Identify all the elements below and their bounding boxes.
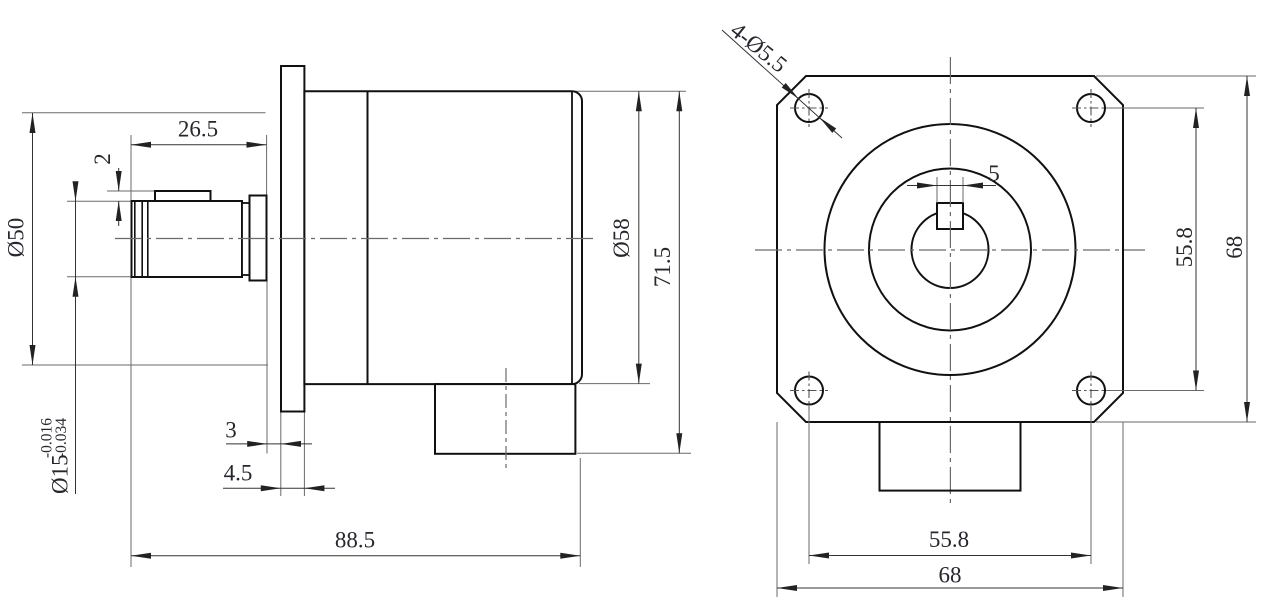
svg-text:88.5: 88.5	[335, 528, 375, 553]
svg-text:26.5: 26.5	[178, 117, 218, 142]
svg-text:Ø15: Ø15	[48, 454, 73, 494]
svg-text:68: 68	[1222, 236, 1247, 259]
svg-text:55.8: 55.8	[929, 527, 969, 552]
svg-text:55.8: 55.8	[1172, 227, 1197, 267]
svg-text:3: 3	[225, 418, 237, 443]
svg-text:4.5: 4.5	[224, 461, 253, 486]
svg-text:68: 68	[939, 563, 962, 588]
svg-text:Ø58: Ø58	[609, 218, 634, 258]
svg-text:5: 5	[988, 161, 1000, 186]
svg-text:Ø50: Ø50	[4, 218, 29, 258]
svg-text:2: 2	[90, 153, 115, 165]
svg-text:-0.034: -0.034	[53, 418, 70, 458]
svg-text:71.5: 71.5	[650, 247, 675, 287]
